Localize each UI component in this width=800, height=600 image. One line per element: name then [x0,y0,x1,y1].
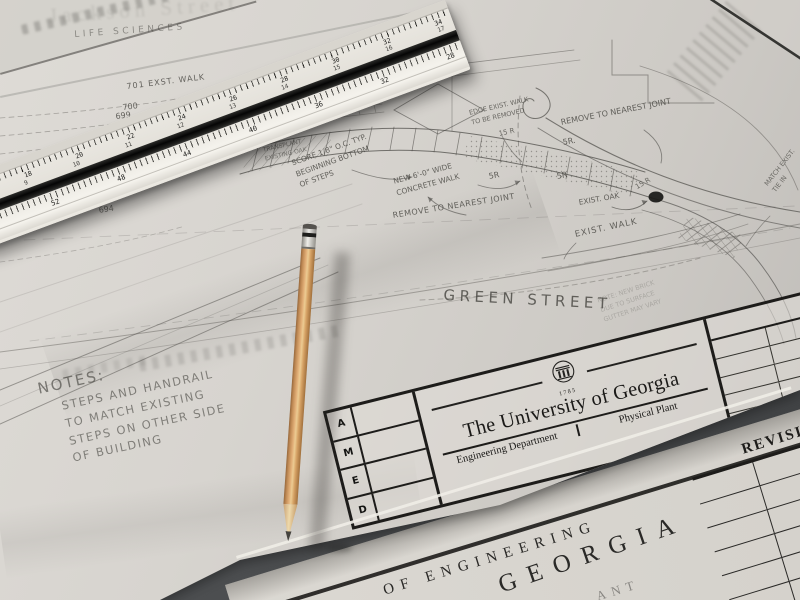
divider [575,424,580,436]
photo-of-drafting-table: OF ENGINEERING GEORGIA ANT REVISIONS [0,0,800,600]
pencil-sharpened-wood [281,504,297,533]
pencil-graphite-tip [285,531,292,541]
ruler-number: 9 [23,179,29,188]
pencil-tip-shadow [326,544,352,552]
existing-oak-tree-symbol [649,192,664,203]
riser-count-label: 5R [488,170,500,181]
riser-count-label: 5R [556,170,568,181]
approval-letter: M [334,436,366,469]
approval-letter: E [341,465,373,498]
